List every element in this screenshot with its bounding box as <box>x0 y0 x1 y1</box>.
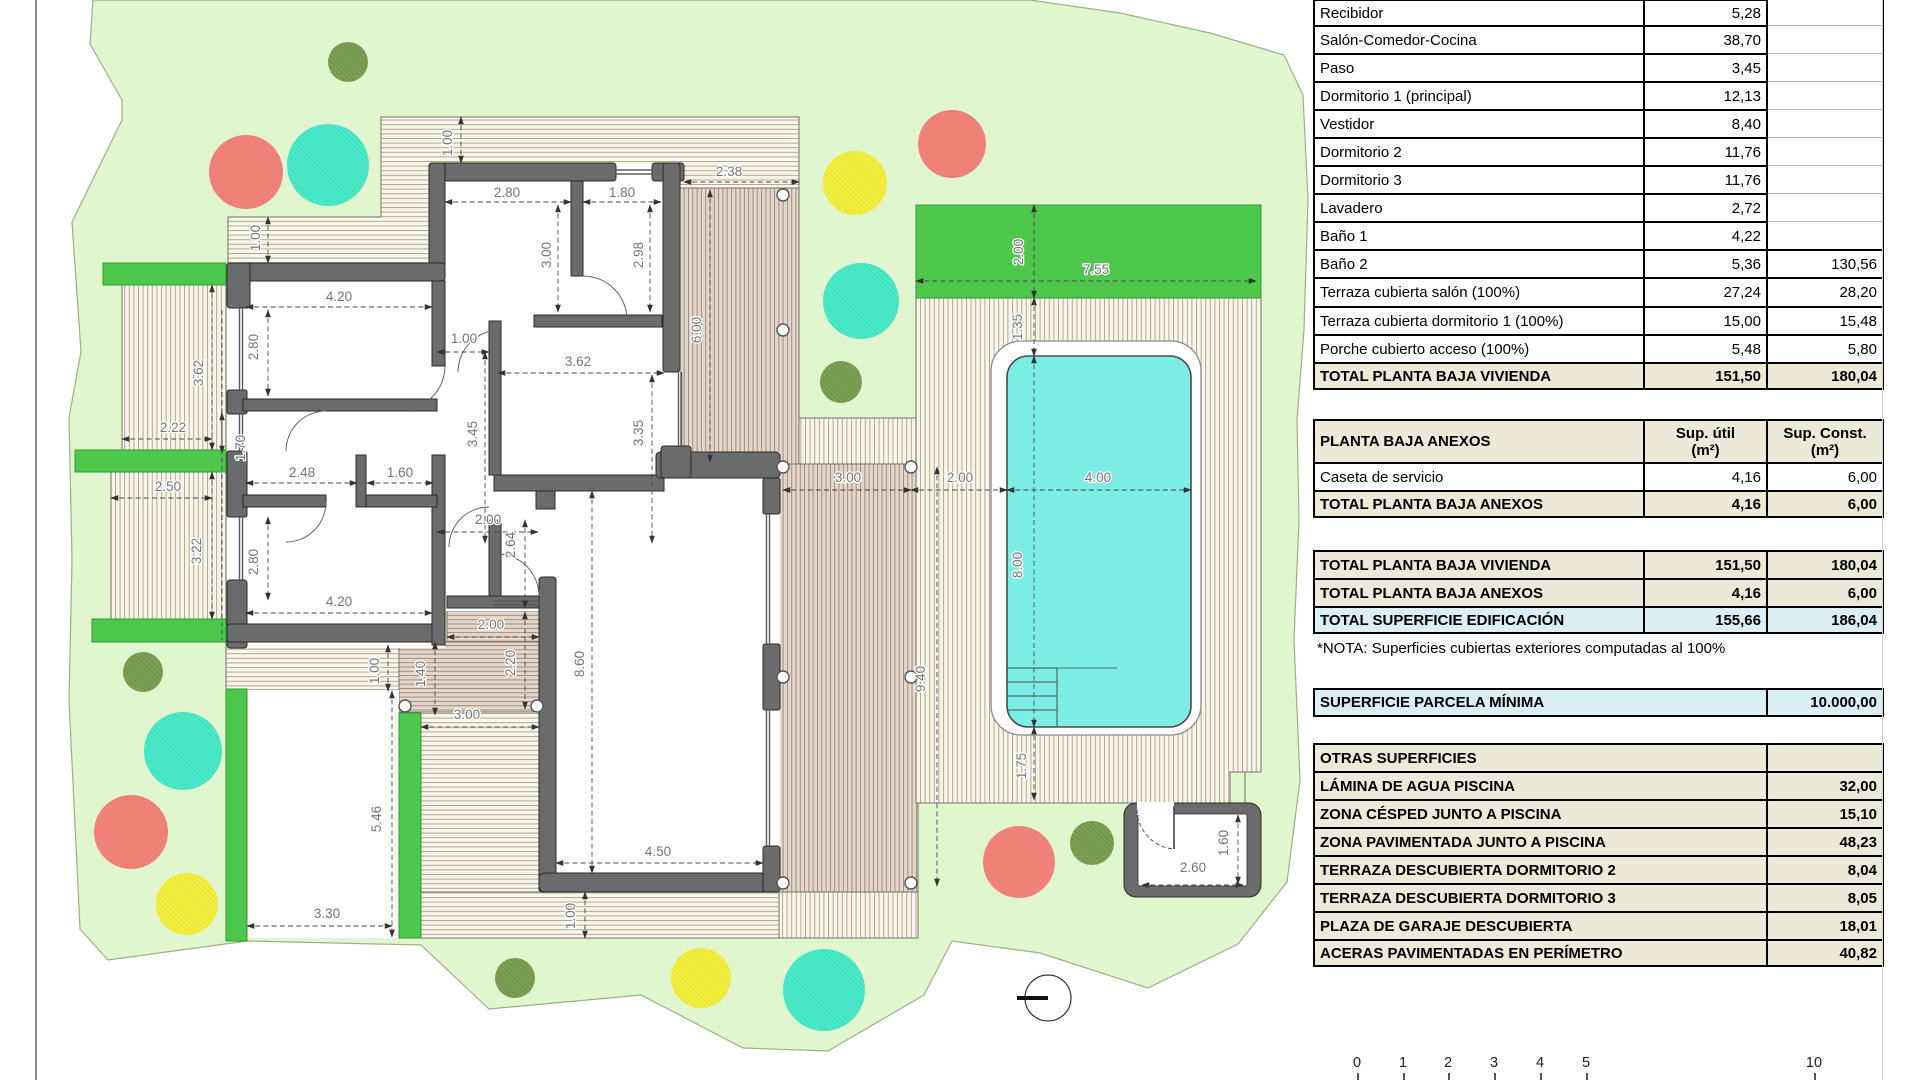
svg-text:9.40: 9.40 <box>913 666 928 692</box>
svg-text:2.80: 2.80 <box>246 334 261 360</box>
svg-text:2.00: 2.00 <box>475 512 501 527</box>
svg-text:3.30: 3.30 <box>314 906 340 921</box>
svg-text:2.00: 2.00 <box>1011 239 1026 265</box>
svg-text:1.00: 1.00 <box>563 903 578 929</box>
svg-text:1.00: 1.00 <box>451 331 477 346</box>
svg-text:5.46: 5.46 <box>369 806 384 832</box>
svg-text:2.22: 2.22 <box>160 420 186 435</box>
svg-text:3.35: 3.35 <box>631 420 646 446</box>
svg-text:2.80: 2.80 <box>494 185 520 200</box>
svg-text:3.62: 3.62 <box>565 354 591 369</box>
svg-text:2.20: 2.20 <box>503 650 518 676</box>
svg-text:2.38: 2.38 <box>716 164 742 179</box>
svg-text:1.35: 1.35 <box>1010 314 1025 340</box>
svg-text:8.60: 8.60 <box>572 651 587 677</box>
svg-text:8.00: 8.00 <box>1010 552 1025 578</box>
svg-text:2.00: 2.00 <box>478 617 504 632</box>
svg-text:1.60: 1.60 <box>387 465 413 480</box>
svg-text:2.00: 2.00 <box>947 470 973 485</box>
svg-text:4.20: 4.20 <box>326 289 352 304</box>
svg-text:2.48: 2.48 <box>289 465 315 480</box>
svg-text:3.00: 3.00 <box>539 242 554 268</box>
svg-text:1.70: 1.70 <box>233 435 248 461</box>
svg-text:2.98: 2.98 <box>631 242 646 268</box>
svg-text:3.22: 3.22 <box>189 538 204 564</box>
svg-text:3.45: 3.45 <box>465 421 480 447</box>
svg-text:7.55: 7.55 <box>1083 262 1109 277</box>
svg-text:2.80: 2.80 <box>246 549 261 575</box>
svg-text:1.60: 1.60 <box>1216 830 1231 856</box>
svg-text:2.64: 2.64 <box>503 531 518 558</box>
svg-text:1.00: 1.00 <box>440 130 455 156</box>
svg-text:2.60: 2.60 <box>1180 860 1206 875</box>
svg-text:1.80: 1.80 <box>609 185 635 200</box>
svg-text:3.00: 3.00 <box>454 707 480 722</box>
svg-text:3.00: 3.00 <box>835 470 861 485</box>
svg-text:1.40: 1.40 <box>413 661 428 687</box>
svg-text:6.00: 6.00 <box>689 317 704 343</box>
svg-text:4.50: 4.50 <box>645 844 671 859</box>
svg-text:1.00: 1.00 <box>248 225 263 251</box>
svg-text:4.20: 4.20 <box>326 594 352 609</box>
svg-text:4.00: 4.00 <box>1085 470 1111 485</box>
svg-text:1.00: 1.00 <box>367 658 382 684</box>
svg-text:2.50: 2.50 <box>155 479 181 494</box>
svg-text:1.75: 1.75 <box>1014 753 1029 779</box>
svg-text:3.62: 3.62 <box>191 360 206 386</box>
